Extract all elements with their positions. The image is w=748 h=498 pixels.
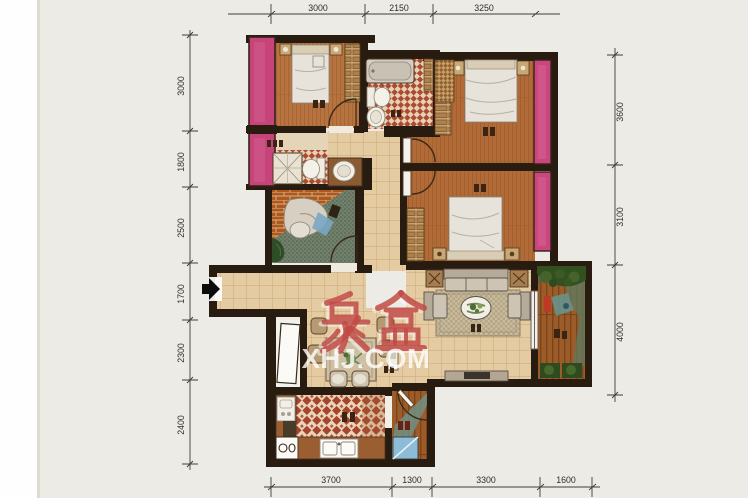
svg-text:3700: 3700: [321, 475, 341, 485]
svg-text:3100: 3100: [615, 207, 625, 227]
svg-text:1300: 1300: [402, 475, 422, 485]
svg-text:3000: 3000: [176, 76, 186, 96]
svg-text:1800: 1800: [176, 152, 186, 172]
svg-text:2150: 2150: [389, 3, 409, 13]
svg-text:1600: 1600: [556, 475, 576, 485]
svg-text:XHJ.COM: XHJ.COM: [302, 343, 431, 374]
svg-text:3250: 3250: [474, 3, 494, 13]
svg-text:3000: 3000: [308, 3, 328, 13]
svg-text:2300: 2300: [176, 343, 186, 363]
svg-text:3600: 3600: [615, 102, 625, 122]
svg-text:3300: 3300: [476, 475, 496, 485]
svg-text:2500: 2500: [176, 218, 186, 238]
svg-text:1700: 1700: [176, 284, 186, 304]
svg-text:2400: 2400: [176, 415, 186, 435]
svg-text:4000: 4000: [615, 322, 625, 342]
